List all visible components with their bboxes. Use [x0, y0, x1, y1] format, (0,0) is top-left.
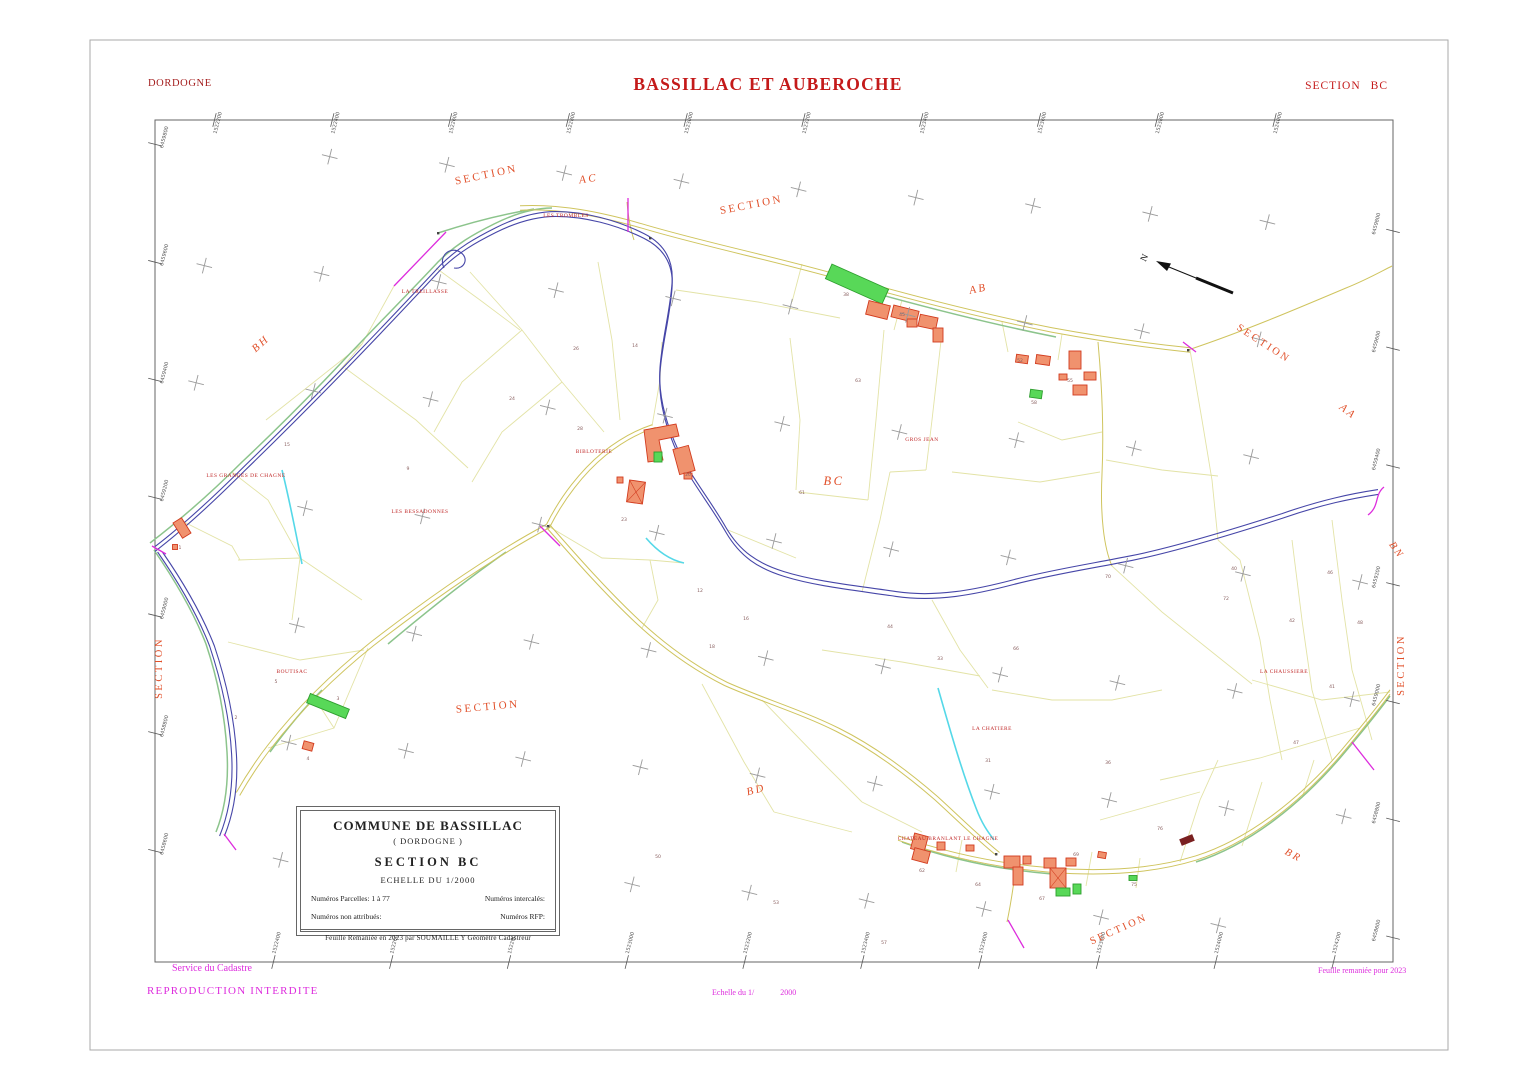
parcel-number: 57 — [881, 940, 887, 946]
parcel-number: 58 — [1031, 400, 1037, 406]
lieu-dit-label: CHATEAU BRANLANT LE CHAGNE — [898, 836, 999, 842]
parcel-number: 66 — [1013, 646, 1019, 652]
scale-note-prefix: Echelle du 1/ — [712, 988, 754, 997]
section-label: SECTION — [154, 637, 165, 699]
lieu-dit-label: LA TREILLASSE — [402, 289, 449, 295]
parcel-number: 55 — [1067, 378, 1073, 384]
lieu-dit-label: LES BESSADONNES — [391, 509, 448, 515]
parcel-number: 5 — [275, 679, 278, 685]
parcel-number: 47 — [1293, 740, 1299, 746]
lieu-dit-label: BIBLOTERIE — [576, 449, 613, 455]
lieu-dit-label: LA CHAUSSIERE — [1260, 669, 1308, 675]
parcel-number: 38 — [843, 292, 849, 298]
parcel-number: 48 — [1357, 620, 1363, 626]
light-building — [1073, 884, 1081, 894]
parcel-number: 2 — [235, 715, 238, 721]
revision-note: Feuille remaniée pour 2023 — [1318, 966, 1406, 975]
scale-note-value: 2000 — [780, 988, 796, 997]
department-sub: ( DORDOGNE ) — [301, 836, 555, 846]
parcel-number: 64 — [975, 882, 981, 888]
parcel-number: 20 — [685, 472, 691, 478]
lieu-dit-label: LA CHATIERE — [972, 726, 1012, 732]
cadastral-map: 1522200152240015224001522600152260015228… — [0, 0, 1536, 1087]
parcel-number: 33 — [937, 656, 943, 662]
light-building — [654, 452, 662, 462]
rfp-field: Numéros RFP: — [500, 912, 545, 921]
scale-title: ECHELLE DU 1/2000 — [301, 875, 555, 885]
parcel-number: 62 — [919, 868, 925, 874]
parcel-number: 61 — [799, 490, 805, 496]
parcel-number: 72 — [1223, 596, 1229, 602]
parcel-number: 53 — [773, 900, 779, 906]
parcel-number: 63 — [855, 378, 861, 384]
title-block-inner: COMMUNE DE BASSILLAC ( DORDOGNE ) SECTIO… — [300, 810, 556, 932]
parcel-number: 1 — [179, 545, 182, 551]
lieu-dit-label: LES GRANGES DE CHAGNE — [206, 473, 285, 479]
section-word: SECTION — [1305, 80, 1361, 92]
reproduction-note: REPRODUCTION INTERDITE — [147, 985, 319, 997]
parcel-number: 75 — [1131, 882, 1137, 888]
section-code: BC — [1371, 80, 1388, 92]
parcel-number: 24 — [509, 396, 515, 402]
parcel-number: 18 — [709, 644, 715, 650]
parcel-number: 16 — [743, 616, 749, 622]
light-building — [1129, 876, 1137, 881]
lieu-dit-label: BOUTISAC — [277, 669, 308, 675]
parcel-number: 44 — [887, 624, 893, 630]
parcel-number: 42 — [1289, 618, 1295, 624]
barn-building — [627, 480, 646, 504]
parcel-number: 46 — [1327, 570, 1333, 576]
parcel-number: 70 — [1105, 574, 1111, 580]
parcel-number: 76 — [1157, 826, 1163, 832]
parcel-number: 23 — [621, 517, 627, 523]
light-building — [1030, 389, 1043, 399]
parcel-number: 41 — [1329, 684, 1335, 690]
parcel-number: 9 — [407, 466, 410, 472]
parcel-number: 69 — [1073, 852, 1079, 858]
parcel-number: 67 — [1039, 896, 1045, 902]
parcelles-field: Numéros Parcelles: 1 à 77 — [311, 894, 390, 903]
parcel-number: 14 — [632, 343, 638, 349]
section-label: SECTION — [1396, 634, 1407, 696]
parcel-number: 26 — [573, 346, 579, 352]
commune-name: COMMUNE DE BASSILLAC — [301, 818, 555, 834]
scale-note: Echelle du 1/2000 — [712, 988, 796, 997]
parcel-number: 45 — [899, 312, 905, 318]
light-building — [1056, 888, 1070, 896]
lieu-dit-label: LES TROMBLES — [543, 213, 589, 219]
parcel-number: 4 — [307, 756, 310, 762]
barn-building — [1050, 868, 1066, 888]
section-title: SECTION BC — [301, 855, 555, 870]
section-header: SECTIONBC — [1305, 80, 1388, 92]
parcel-number: 15 — [284, 442, 290, 448]
parcel-number: 50 — [655, 854, 661, 860]
intercales-field: Numéros intercalés: — [485, 894, 545, 903]
parcel-number: 12 — [697, 588, 703, 594]
revision-line: Feuille Remaniée en 2023 par SOUMAILLE Y… — [301, 929, 555, 942]
parcel-number: 36 — [1105, 760, 1111, 766]
parcel-number: 28 — [577, 426, 583, 432]
cadastral-sheet: 1522200152240015224001522600152260015228… — [0, 0, 1536, 1087]
parcel-number: 3 — [337, 696, 340, 702]
lieu-dit-label: GROS JEAN — [905, 437, 938, 443]
non-attribues-field: Numéros non attribués: — [311, 912, 381, 921]
section-label: BC — [824, 474, 845, 488]
title-block: COMMUNE DE BASSILLAC ( DORDOGNE ) SECTIO… — [296, 806, 560, 936]
parcel-number: 40 — [1231, 566, 1237, 572]
parcel-number: 52 — [1017, 358, 1023, 364]
parcel-number: 31 — [985, 758, 991, 764]
service-note: Service du Cadastre — [172, 963, 252, 974]
